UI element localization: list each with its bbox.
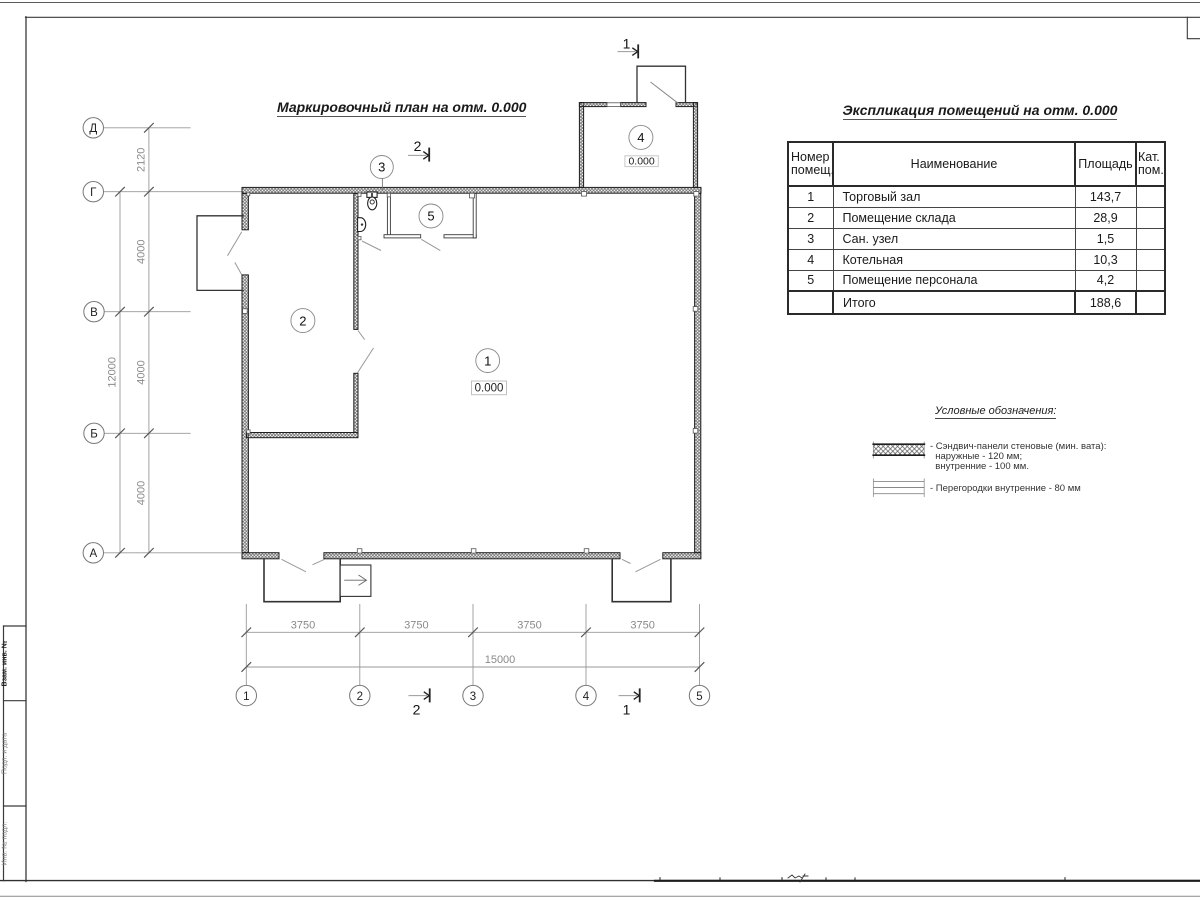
svg-text:3750: 3750	[291, 620, 315, 632]
svg-text:Г: Г	[90, 187, 97, 199]
svg-text:4: 4	[583, 691, 590, 703]
svg-text:4000: 4000	[136, 481, 148, 505]
svg-text:4000: 4000	[136, 360, 148, 384]
svg-text:2: 2	[299, 313, 306, 328]
svg-text:Д: Д	[89, 123, 97, 135]
svg-text:0.000: 0.000	[475, 383, 504, 395]
svg-text:2120: 2120	[136, 148, 148, 172]
svg-text:3750: 3750	[404, 620, 428, 632]
svg-text:3: 3	[470, 691, 476, 703]
svg-text:А: А	[89, 548, 97, 560]
svg-text:3750: 3750	[517, 620, 541, 632]
svg-text:В: В	[90, 307, 98, 319]
svg-text:4000: 4000	[136, 239, 148, 263]
svg-text:15000: 15000	[485, 654, 516, 666]
svg-text:5: 5	[427, 209, 434, 224]
svg-text:2: 2	[413, 702, 421, 718]
svg-text:1: 1	[623, 36, 631, 52]
svg-text:12000: 12000	[107, 357, 119, 388]
svg-text:Б: Б	[90, 429, 98, 441]
svg-text:3: 3	[378, 160, 385, 175]
svg-text:5: 5	[696, 691, 702, 703]
svg-text:0.000: 0.000	[628, 156, 654, 168]
svg-text:1: 1	[484, 353, 491, 368]
svg-text:1: 1	[243, 691, 249, 703]
svg-text:1: 1	[623, 702, 631, 718]
svg-text:4: 4	[637, 130, 644, 145]
svg-text:2: 2	[357, 691, 363, 703]
svg-text:3750: 3750	[630, 620, 654, 632]
svg-text:2: 2	[414, 138, 422, 154]
